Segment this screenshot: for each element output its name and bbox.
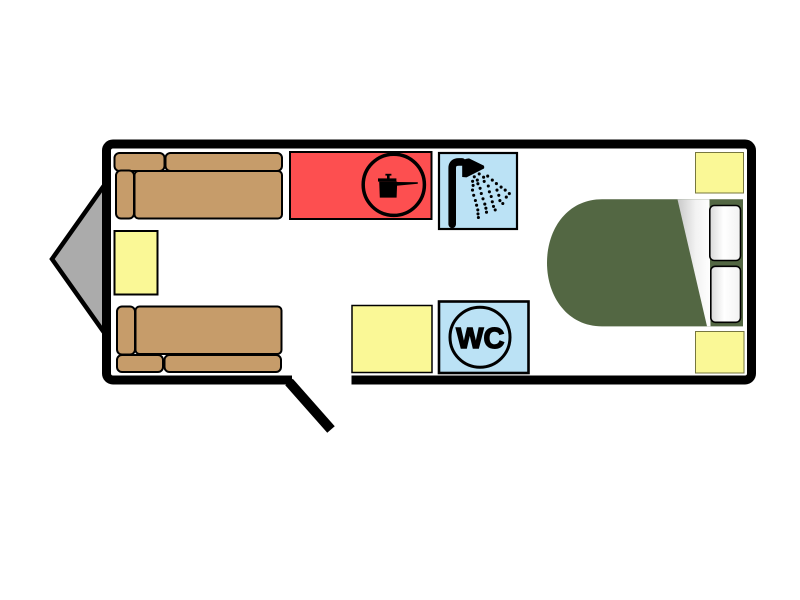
svg-text:WC: WC [456, 323, 504, 355]
